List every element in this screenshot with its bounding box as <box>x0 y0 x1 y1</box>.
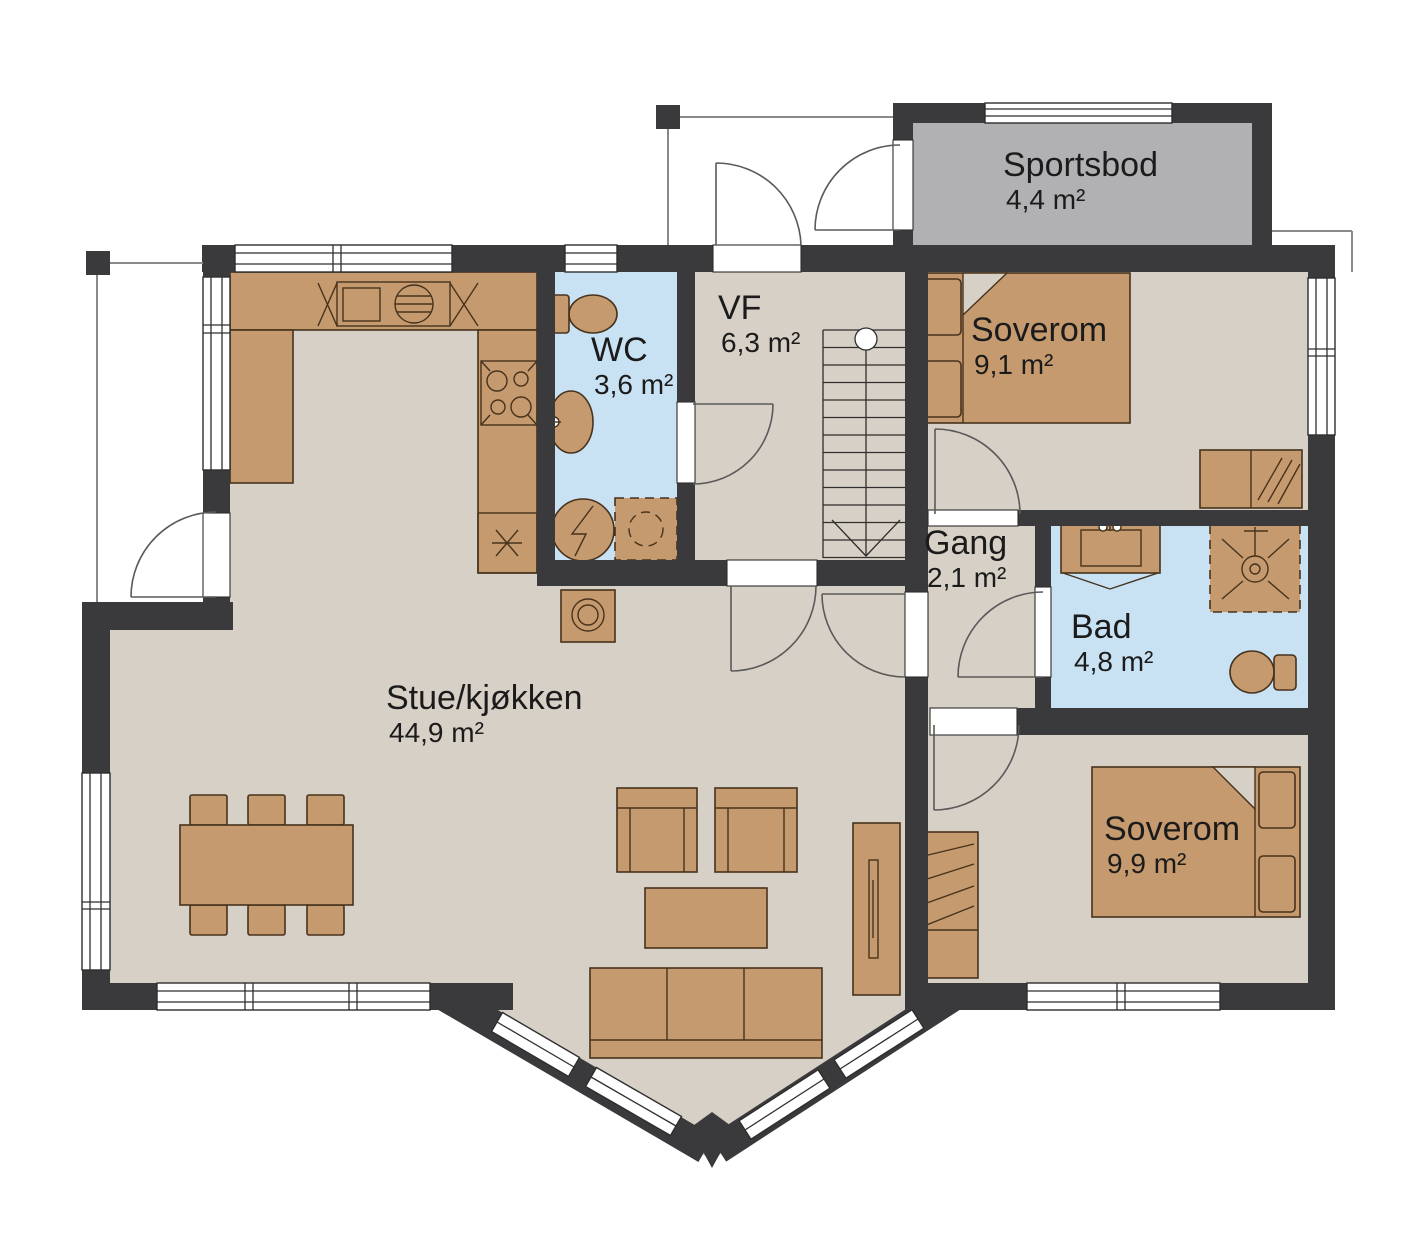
armchair-2 <box>715 788 797 872</box>
room-name: Sportsbod <box>1003 146 1158 184</box>
porch-post-top <box>656 105 680 129</box>
fireplace-icon <box>561 590 615 642</box>
kitchen-counter-right <box>478 330 537 573</box>
label-vf: VF 6,3 m² <box>718 289 800 359</box>
label-gang: Gang 2,1 m² <box>924 524 1007 594</box>
window-sportsbod <box>985 103 1172 123</box>
wardrobe-1 <box>1200 450 1302 508</box>
armchair-1 <box>617 788 697 872</box>
room-area: 4,4 m² <box>1003 184 1158 216</box>
coffee-table <box>645 888 767 948</box>
room-area: 44,9 m² <box>386 717 583 749</box>
room-area: 9,1 m² <box>971 349 1107 381</box>
floor-plan-drawing <box>0 0 1415 1235</box>
label-soverom-1: Soverom 9,1 m² <box>971 311 1107 381</box>
room-area: 9,9 m² <box>1104 848 1240 880</box>
door-sportsbod <box>815 140 913 230</box>
water-heater-icon <box>552 499 614 561</box>
room-area: 6,3 m² <box>718 327 800 359</box>
sofa <box>590 968 822 1058</box>
dining-table <box>180 825 353 905</box>
room-name: Bad <box>1071 608 1153 646</box>
shower-icon <box>1210 525 1300 612</box>
floor-plan-page: Sportsbod 4,4 m² WC 3,6 m² VF 6,3 m² Sov… <box>0 0 1415 1235</box>
label-bad: Bad 4,8 m² <box>1071 608 1153 678</box>
toilet-icon <box>552 295 617 333</box>
washing-machine-icon <box>615 498 677 560</box>
window-left <box>82 773 110 970</box>
door-entry <box>713 163 801 272</box>
room-name: Soverom <box>971 311 1107 349</box>
label-stue-kjokken: Stue/kjøkken 44,9 m² <box>386 679 583 749</box>
room-name: WC <box>591 331 673 369</box>
window-kitchen <box>235 245 452 272</box>
tv-bench <box>853 823 900 995</box>
room-area: 4,8 m² <box>1071 646 1153 678</box>
room-name: VF <box>718 289 800 327</box>
dining-set <box>180 795 353 935</box>
porch-post-left <box>86 251 110 275</box>
label-wc: WC 3,6 m² <box>591 331 673 401</box>
room-name: Gang <box>924 524 1007 562</box>
room-name: Soverom <box>1104 810 1240 848</box>
kitchen-counter-left <box>230 330 293 483</box>
window-bedroom-2 <box>1027 983 1220 1010</box>
window-bedroom-1 <box>1308 278 1335 435</box>
room-area: 2,1 m² <box>924 562 1007 594</box>
bathroom-toilet-icon <box>1230 651 1296 693</box>
door-terrace <box>131 512 230 597</box>
label-soverom-2: Soverom 9,9 m² <box>1104 810 1240 880</box>
kitchen-counter-top <box>230 272 537 330</box>
window-wc <box>565 245 617 272</box>
window-dining <box>157 983 430 1010</box>
label-sportsbod: Sportsbod 4,4 m² <box>1003 146 1158 216</box>
wc-sink-icon <box>549 391 593 453</box>
wardrobe-2 <box>920 832 978 978</box>
window-west <box>203 277 230 470</box>
room-name: Stue/kjøkken <box>386 679 583 717</box>
room-area: 3,6 m² <box>591 369 673 401</box>
